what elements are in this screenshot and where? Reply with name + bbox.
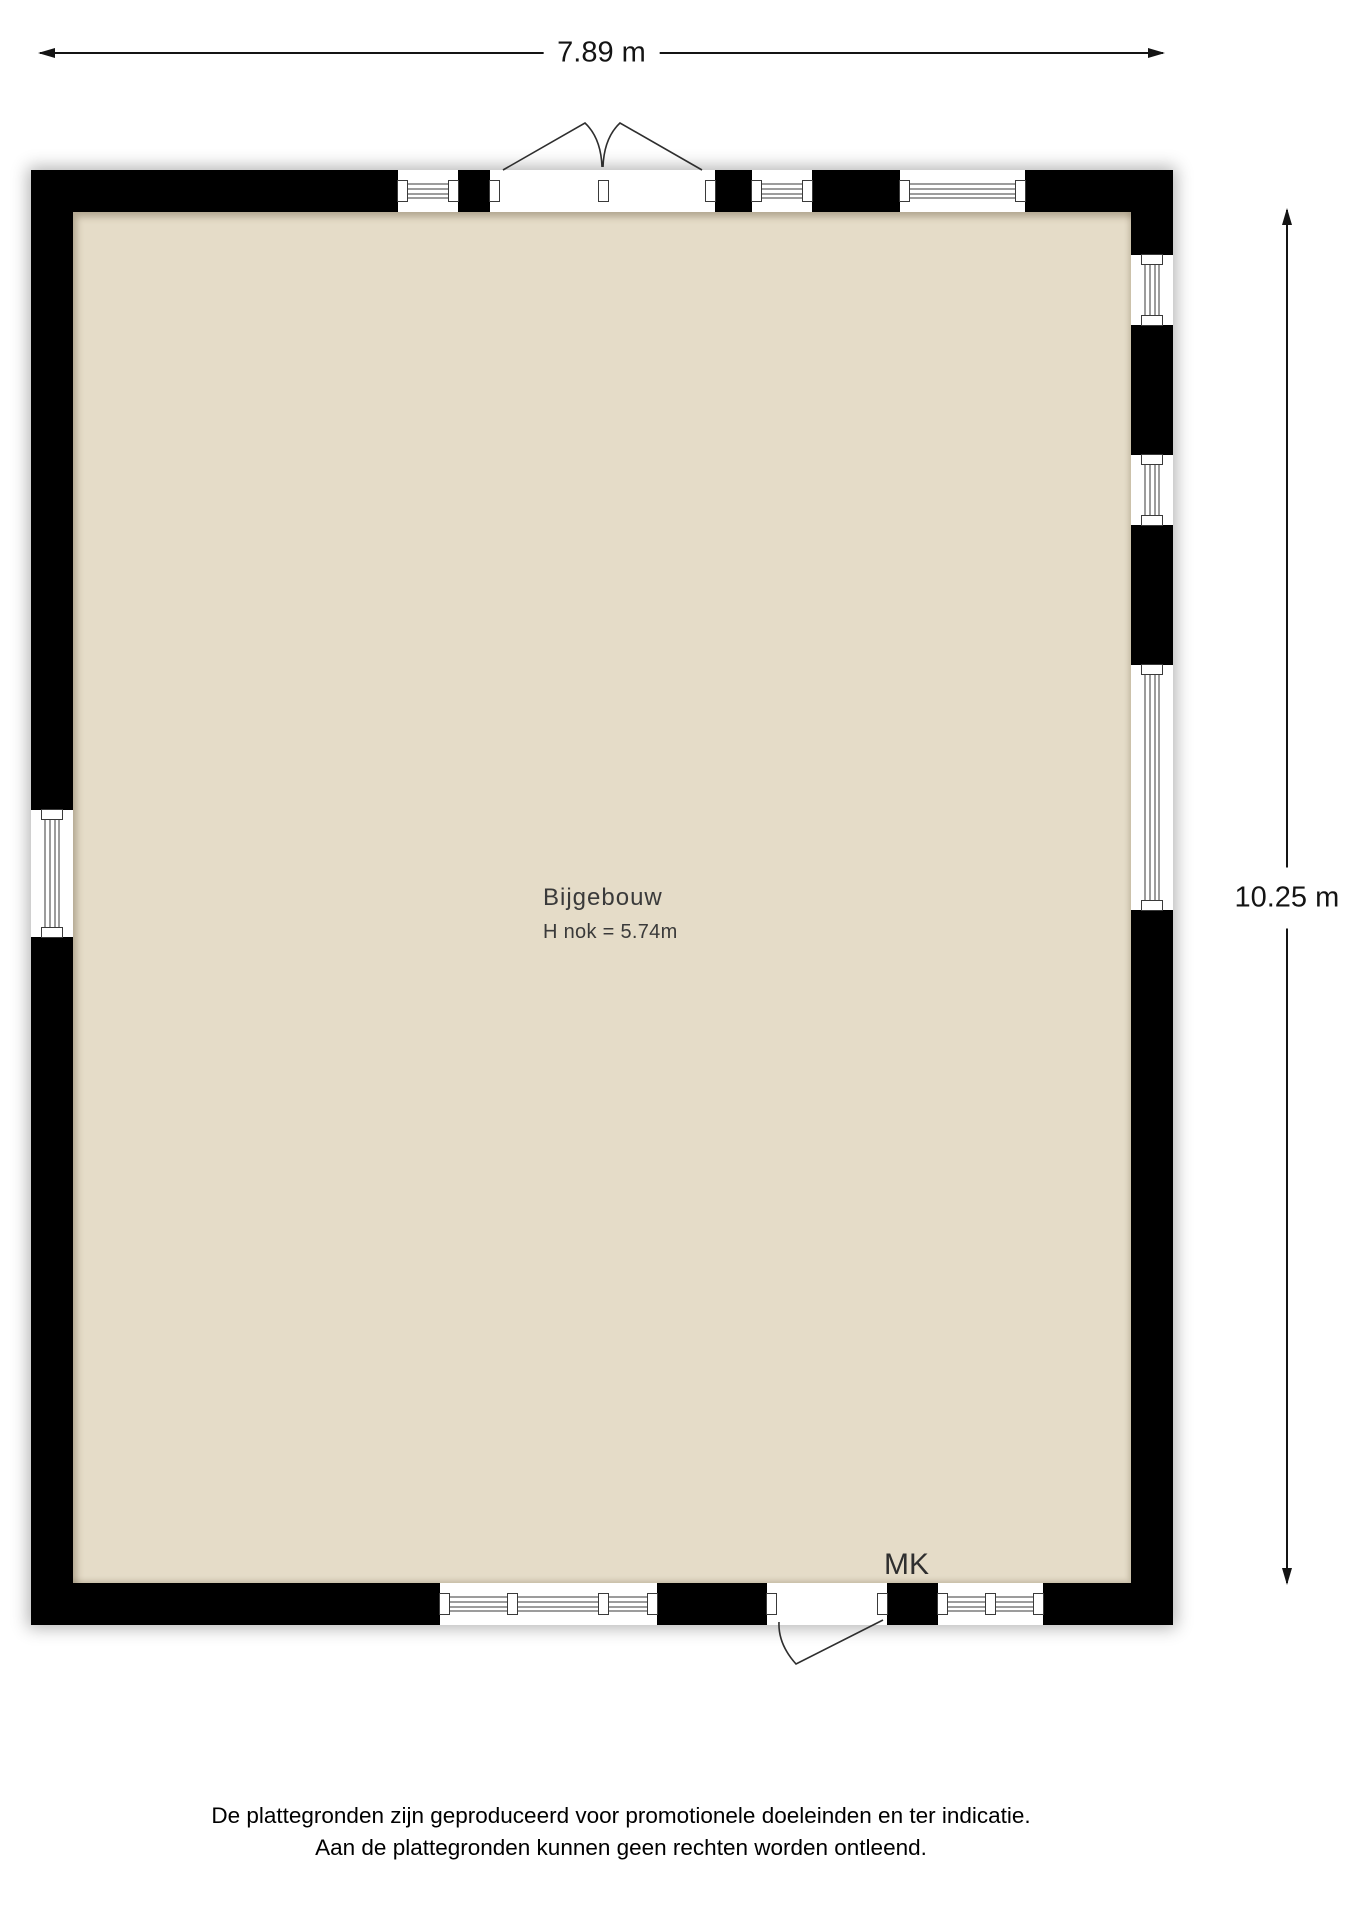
room-label-group: Bijgebouw H nok = 5.74m — [543, 884, 678, 944]
window-glass — [405, 184, 451, 199]
frame-post — [1141, 454, 1163, 465]
frame-post — [1015, 180, 1026, 202]
window-glass — [1145, 462, 1160, 518]
floorplan-canvas: 7.89 m Bijgebouw H nok = 5.74m MK 10.25 … — [0, 0, 1358, 1920]
frame-post — [439, 1593, 450, 1615]
disclaimer-line-2: Aan de plattegronden kunnen geen rechten… — [0, 1832, 1242, 1864]
window — [440, 1583, 657, 1625]
frame-post — [705, 180, 716, 202]
window — [1131, 455, 1173, 525]
window-glass — [45, 817, 60, 930]
height-dimension-label: 10.25 m — [1234, 868, 1339, 929]
frame-post — [1141, 254, 1163, 265]
frame-post — [766, 1593, 777, 1615]
frame-post — [647, 1593, 658, 1615]
window — [31, 810, 73, 937]
frame-post — [397, 180, 408, 202]
frame-post — [41, 927, 63, 938]
window — [1131, 665, 1173, 910]
frame-post — [448, 180, 459, 202]
disclaimer-text: De plattegronden zijn geproduceerd voor … — [0, 1800, 1242, 1864]
frame-post — [41, 809, 63, 820]
window-glass — [1145, 672, 1160, 903]
window — [752, 170, 812, 212]
frame-post — [1141, 315, 1163, 326]
height-dimension-line: 10.25 m — [1286, 210, 1288, 1583]
arrowhead-left-icon — [38, 48, 55, 58]
arrowhead-down-icon — [1282, 1568, 1292, 1585]
frame-post — [1141, 664, 1163, 675]
frame-post — [877, 1593, 888, 1615]
arrowhead-up-icon — [1282, 208, 1292, 225]
width-dimension-label: 7.89 m — [543, 36, 660, 69]
window — [900, 170, 1025, 212]
window-glass — [447, 1597, 650, 1612]
frame-post — [802, 180, 813, 202]
window-glass — [759, 184, 805, 199]
frame-post — [1141, 900, 1163, 911]
window-glass — [1145, 262, 1160, 318]
frame-post — [899, 180, 910, 202]
arrowhead-right-icon — [1148, 48, 1165, 58]
frame-post — [1033, 1593, 1044, 1615]
window-glass — [907, 184, 1018, 199]
frame-post — [598, 1593, 609, 1615]
width-dimension-line: 7.89 m — [40, 52, 1163, 54]
frame-post — [598, 180, 609, 202]
frame-post — [489, 180, 500, 202]
meter-cupboard-label: MK — [884, 1548, 929, 1582]
frame-post — [507, 1593, 518, 1615]
double-door-swing-icon — [485, 103, 720, 173]
ridge-height-note: H nok = 5.74m — [543, 921, 678, 944]
frame-post — [937, 1593, 948, 1615]
window — [1131, 255, 1173, 325]
window — [938, 1583, 1043, 1625]
window — [398, 170, 458, 212]
single-door-swing-icon — [772, 1618, 892, 1678]
frame-post — [985, 1593, 996, 1615]
room-name: Bijgebouw — [543, 884, 678, 912]
frame-post — [1141, 515, 1163, 526]
disclaimer-line-1: De plattegronden zijn geproduceerd voor … — [0, 1800, 1242, 1832]
double-door-opening — [490, 170, 715, 212]
frame-post — [751, 180, 762, 202]
